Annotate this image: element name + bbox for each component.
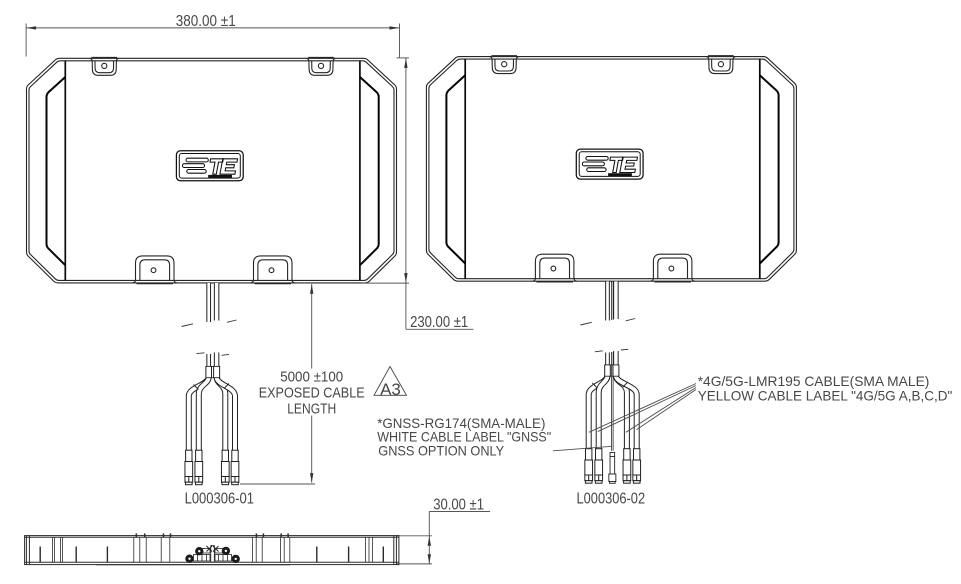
svg-text:30.00 ±1: 30.00 ±1 [433,497,484,514]
svg-text:A3: A3 [380,380,401,399]
svg-text:YELLOW CABLE LABEL "4G/5G A,B,: YELLOW CABLE LABEL "4G/5G A,B,C,D" [698,388,953,404]
svg-text:GNSS OPTION ONLY: GNSS OPTION ONLY [378,442,504,458]
svg-text:380.00 ±1: 380.00 ±1 [176,13,236,30]
svg-text:230.00 ±1: 230.00 ±1 [410,314,468,331]
svg-text:*4G/5G-LMR195 CABLE(SMA MALE): *4G/5G-LMR195 CABLE(SMA MALE) [698,373,930,389]
svg-text:L000306-01: L000306-01 [185,490,254,507]
svg-text:EXPOSED CABLE: EXPOSED CABLE [259,385,365,402]
svg-text:LENGTH: LENGTH [287,400,336,417]
svg-text:5000 ±100: 5000 ±100 [280,369,343,386]
svg-text:L000306-02: L000306-02 [577,491,646,508]
